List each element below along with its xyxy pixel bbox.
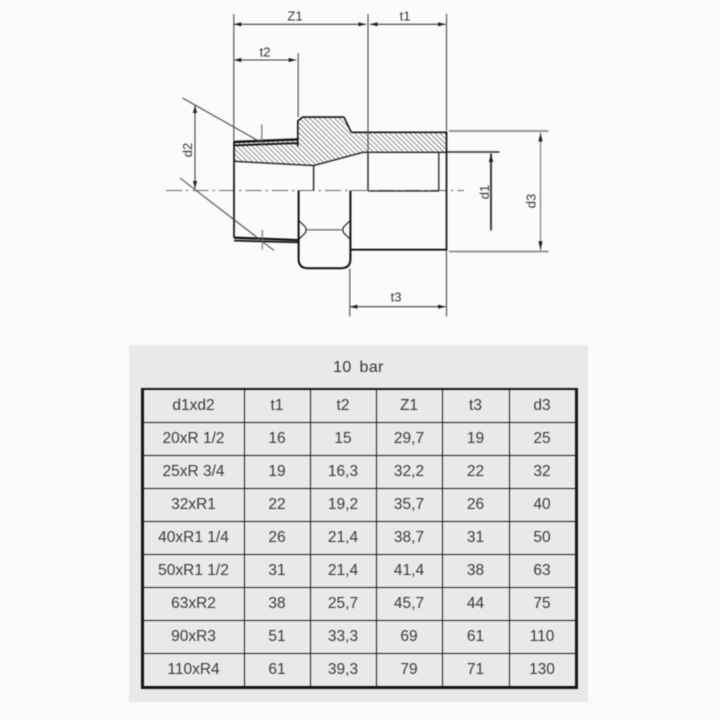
svg-text:t2: t2 [260,45,271,60]
svg-text:t1: t1 [400,9,411,24]
svg-text:Z1: Z1 [287,9,302,24]
svg-text:d2: d2 [180,143,195,157]
svg-text:d1: d1 [477,185,492,199]
svg-text:d3: d3 [524,194,539,208]
svg-text:t3: t3 [391,290,402,305]
